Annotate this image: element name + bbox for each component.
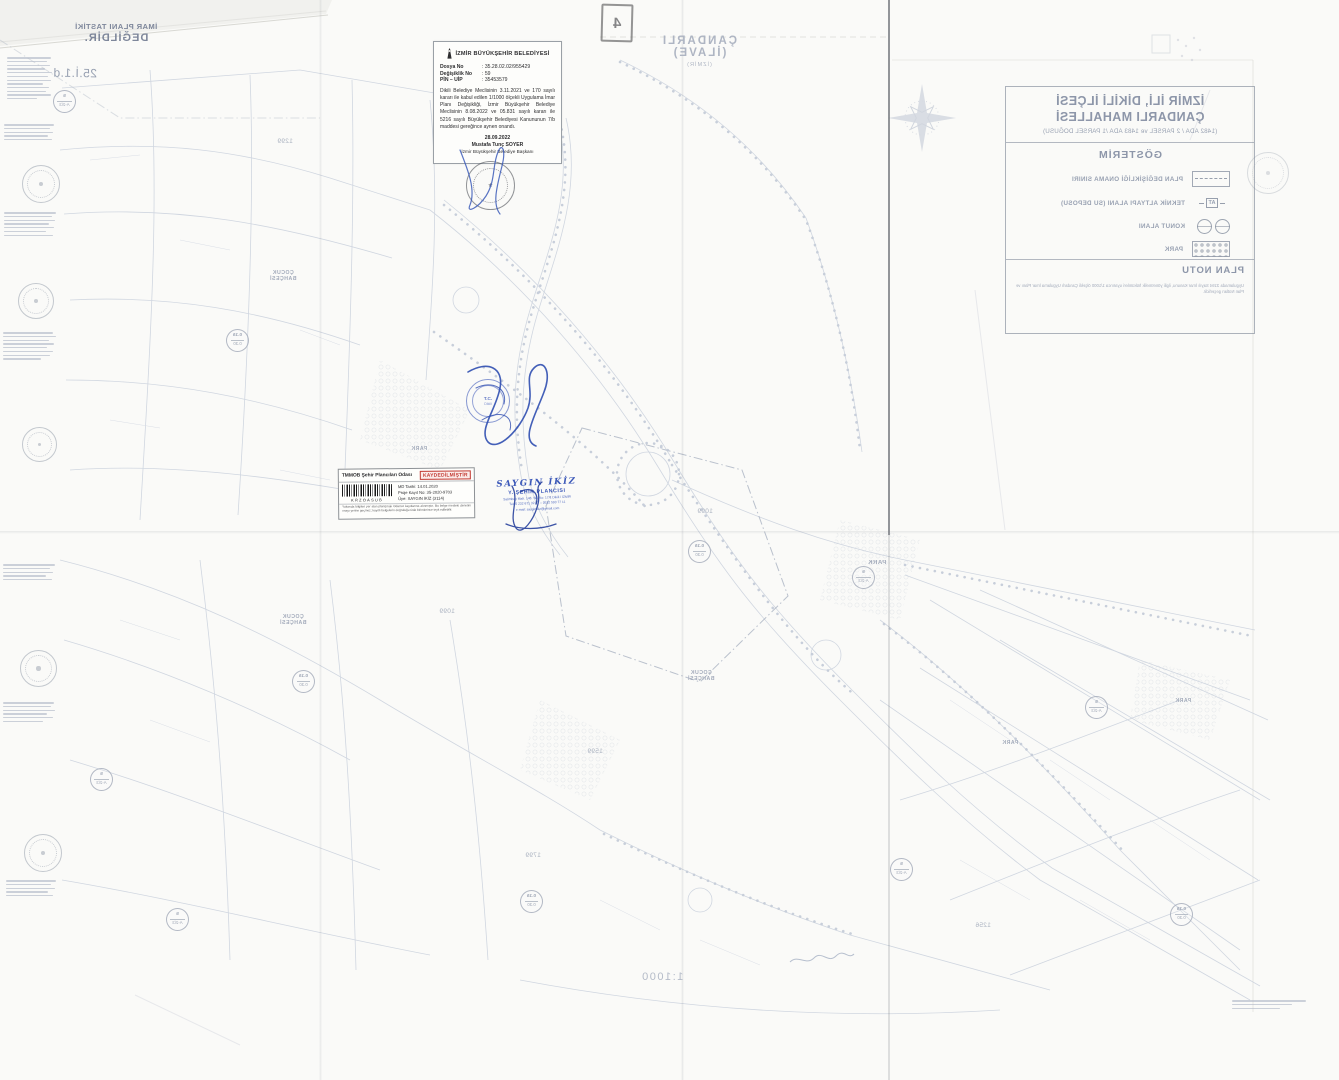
izmir-clock-tower-icon [446,48,453,59]
map-label-playground: ÇOCUK BAHÇESİ [266,270,300,282]
faint-text-block [4,210,58,238]
zoning-ratio-circle: 0.150.30 [520,890,543,913]
approval-header: İZMİR BÜYÜKŞEHİR BELEDİYESİ [434,48,561,59]
legend-symbol-boundary [1192,171,1230,187]
plan-title: İZMİR İLİ, DİKİLİ İLÇESİ ÇANDARLI MAHALL… [1006,94,1254,135]
legend-row: KONUT ALANI [1014,216,1230,236]
map-label-park: PARK [995,740,1025,746]
legend-label: KONUT ALANI [1139,223,1185,230]
legend-symbol-housing [1194,219,1230,233]
panel-divider [1006,259,1254,260]
neighborhood-line: ÇANDARLI MAHALLESİ [1006,110,1254,126]
legend-symbol-technical-infrastructure: AT [1194,196,1230,210]
registration-fine-print: Yukarıda bilgileri yer alan plan/proje O… [339,503,474,515]
disclaimer-line2: DEĞİLDİR. [70,32,162,44]
faint-text-block [4,122,56,143]
corner-symbol-glyph: 4 [613,14,622,31]
adjacent-sheet-title: ÇANDARLI (İLAVE) (İZMİR) [645,35,753,68]
approval-decision-text: Dikili Belediye Meclisinin 3.11.2021 ve … [440,88,555,131]
barcode-text: KRZOASUB [342,497,392,503]
adjacent-sheet-province: (İZMİR) [645,62,753,68]
disclaimer-line1: İMAR PLANI TASTİKİ [70,22,162,31]
map-lot-number: 1099 [432,608,462,615]
round-stamp-faint [24,834,62,872]
chamber-name: TMMOB Şehir Plancıları Odası [342,473,412,479]
municipal-round-stamp: ★ [466,161,515,210]
province-district-line: İZMİR İLİ, DİKİLİ İLÇESİ [1006,94,1254,110]
field-value: : 35.28.02.02/955429 [482,64,530,71]
planner-stamp: SAYGIN İKİZ Y. ŞEHİR PLANCISI Salimbey M… [488,476,585,513]
boundary-layer [0,40,788,682]
title-block-panel: İZMİR İLİ, DİKİLİ İLÇESİ ÇANDARLI MAHALL… [1005,86,1255,334]
map-scale-text: 1:1000 [640,971,684,983]
faint-text-block [3,562,57,583]
fold-crease [0,531,1339,534]
sheet-corner-symbol: 4 [601,4,634,43]
approval-signature-block: 28.09.2022 Mustafa Tunç SOYER İzmir Büyü… [434,135,561,156]
legend-label: TEKNİK ALTYAPI ALANI (SU DEPOSU) [1061,200,1185,207]
map-lot-number: 1799 [518,852,548,859]
faint-text-block [7,55,53,102]
zoning-ratio-circle: 0.150.30 [226,329,249,352]
zoning-ratio-circle: 0.150.30 [292,670,315,693]
registration-field: Üye: SAYGIN İKİZ (3114) [398,496,452,503]
map-lot-number: 1299 [270,138,300,145]
registration-fields: MD Tarihi: 14.01.2020 Proje Kayıt No: 35… [398,484,452,503]
map-lot-number: 1599 [580,748,610,755]
field-label: PİN – UİP [440,77,482,84]
round-stamp-faint [22,165,60,203]
municipality-name: İZMİR BÜYÜKŞEHİR BELEDİYESİ [456,51,550,57]
barcode-wrap: KRZOASUB [342,484,392,503]
fold-crease [319,0,322,1080]
panel-divider [1006,142,1254,143]
legend-row: AT TEKNİK ALTYAPI ALANI (SU DEPOSU) [1014,193,1230,213]
faint-text-block [6,878,58,899]
adjacent-sheet-name: ÇANDARLI (İLAVE) [645,35,753,59]
zoning-circle: 5A-2/3 [1085,696,1108,719]
field-label: Dosya No [440,64,482,71]
zoning-ratio-circle: 0.150.30 [1170,903,1193,926]
signatory-title: İzmir Büyükşehir Belediye Başkanı [461,149,533,154]
map-label-park: PARK [1168,698,1198,704]
compass-rose [888,84,956,152]
approval-block: İZMİR BÜYÜKŞEHİR BELEDİYESİ Dosya No: 35… [433,41,562,164]
plan-note-title: PLAN NOTU [1181,265,1244,276]
legend-title: GÖSTERİM [1006,149,1254,161]
at-box-text: AT [1206,198,1219,208]
legend-row: PLAN DEĞİŞİKLİĞİ ONAMA SINIRI [1014,169,1230,189]
park-areas-layer [360,360,1230,800]
field-value: : 35453579 [482,77,508,84]
faint-text-block [1232,998,1308,1011]
zoning-circle: 5A-2/3 [890,858,913,881]
map-label-park: PARK [404,446,434,452]
tc-round-seal: T.C. Dikili [466,379,510,423]
pencil-note-squiggle [790,953,854,962]
faint-text-block [3,700,57,725]
seal-bottom-text: Dikili [484,402,492,406]
approval-fields: Dosya No: 35.28.02.02/955429 Değişiklik … [440,64,556,84]
legend-row: PARK [1014,239,1230,259]
map-lot-number: 1256 [968,922,998,929]
map-lot-number: 1099 [690,508,720,515]
map-label-playground: ÇOCUK BAHÇESİ [276,614,310,626]
fold-crease-dark-lower [888,535,890,1080]
scanned-plan-sheet: İMAR PLANI TASTİKİ DEĞİLDİR. 25.İ.1.d 4 [0,0,1339,1080]
zoning-circle: 5A-2/3 [90,768,113,791]
zoning-ratio-circle: 0.150.30 [688,540,711,563]
round-stamp-faint [20,650,57,687]
sheet-number: 25.İ.1.d [55,66,97,81]
plan-note-text: Uygulamada 3194 Sayılı İmar Kanunu, ilgi… [1016,283,1244,296]
map-label-playground: ÇOCUK BAHÇESİ [684,670,718,682]
round-stamp-faint [18,283,54,319]
legend-label: PLAN DEĞİŞİKLİĞİ ONAMA SINIRI [1072,176,1183,183]
fold-crease [681,0,684,1080]
zoning-circle: 5A-2/3 [166,908,189,931]
zoning-circle: 5A-2/3 [852,566,875,589]
fold-crease-dark [888,0,890,535]
legend-symbol-park [1192,241,1230,257]
disclaimer-block: İMAR PLANI TASTİKİ DEĞİLDİR. [70,22,162,44]
dither-block [1152,35,1201,61]
faint-text-block [3,330,57,362]
registration-label: TMMOB Şehir Plancıları Odası KAYDEDİLMİŞ… [338,467,476,519]
stamp-star-glyph: ★ [467,162,514,209]
round-stamp-faint [22,427,57,462]
zoning-circle: 5A-2/3 [53,90,76,113]
signatory-name: Mustafa Tunç SOYER [472,142,524,148]
map-label-park: PARK [862,560,892,566]
registered-badge: KAYDEDİLMİŞTİR [420,470,471,480]
legend-label: PARK [1164,246,1183,253]
approval-date: 28.09.2022 [485,135,511,141]
field-value: : 59 [482,71,491,78]
barcode [342,484,392,497]
parcels-line: (1482 ADA / 2 PARSEL ve 1483 ADA /1 PARS… [1006,128,1254,135]
